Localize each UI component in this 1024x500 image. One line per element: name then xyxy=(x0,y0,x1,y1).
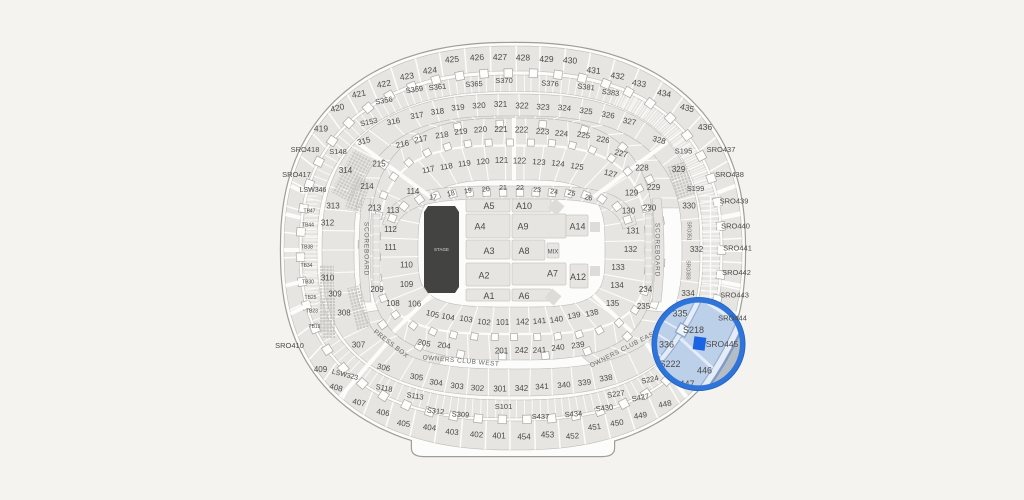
svg-text:S381: S381 xyxy=(577,82,595,93)
svg-text:336: 336 xyxy=(659,339,674,349)
svg-text:339: 339 xyxy=(577,377,592,388)
svg-text:220: 220 xyxy=(473,125,487,135)
svg-text:242: 242 xyxy=(515,346,529,355)
svg-text:222: 222 xyxy=(515,126,529,135)
svg-text:106: 106 xyxy=(408,300,422,309)
svg-text:301: 301 xyxy=(493,385,507,394)
svg-text:SCOREBOARD: SCOREBOARD xyxy=(362,222,369,276)
svg-text:303: 303 xyxy=(450,381,465,391)
svg-text:342: 342 xyxy=(515,384,529,393)
svg-text:123: 123 xyxy=(532,157,546,167)
svg-text:140: 140 xyxy=(549,314,564,325)
svg-text:122: 122 xyxy=(513,157,527,166)
svg-text:429: 429 xyxy=(539,54,553,64)
svg-text:S361: S361 xyxy=(428,82,446,93)
svg-text:TB38: TB38 xyxy=(301,244,313,250)
svg-text:S218: S218 xyxy=(683,325,704,335)
svg-text:20: 20 xyxy=(482,186,491,194)
svg-text:426: 426 xyxy=(470,52,485,63)
svg-text:STAGE: STAGE xyxy=(434,247,449,252)
svg-text:S365: S365 xyxy=(465,79,483,89)
svg-text:S370: S370 xyxy=(495,76,513,85)
svg-text:SRO442: SRO442 xyxy=(722,268,751,277)
svg-text:A12: A12 xyxy=(570,272,586,282)
svg-text:120: 120 xyxy=(476,156,491,166)
svg-text:401: 401 xyxy=(492,432,506,441)
svg-text:425: 425 xyxy=(445,54,460,65)
svg-text:135: 135 xyxy=(606,299,620,308)
svg-text:454: 454 xyxy=(517,433,531,442)
svg-text:A1: A1 xyxy=(483,291,494,301)
svg-text:209: 209 xyxy=(370,285,384,294)
svg-text:TB23: TB23 xyxy=(306,308,318,314)
svg-text:432: 432 xyxy=(610,70,626,82)
svg-text:446: 446 xyxy=(697,365,712,375)
svg-text:TB25: TB25 xyxy=(305,295,317,301)
svg-text:324: 324 xyxy=(557,103,572,113)
svg-text:SCOREBOARD: SCOREBOARD xyxy=(653,223,660,277)
svg-text:SRO383: SRO383 xyxy=(685,260,691,279)
svg-text:319: 319 xyxy=(451,102,466,112)
svg-text:19: 19 xyxy=(464,187,473,195)
svg-text:S437: S437 xyxy=(532,412,550,421)
svg-text:213: 213 xyxy=(368,204,382,213)
svg-text:453: 453 xyxy=(541,431,555,440)
svg-text:424: 424 xyxy=(422,65,437,76)
svg-text:24: 24 xyxy=(550,188,559,196)
svg-text:332: 332 xyxy=(690,245,704,254)
svg-text:A10: A10 xyxy=(516,201,532,211)
svg-text:131: 131 xyxy=(626,227,640,236)
svg-text:111: 111 xyxy=(384,243,397,252)
svg-text:S312: S312 xyxy=(426,406,444,417)
svg-text:S434: S434 xyxy=(564,409,582,419)
svg-text:SRO417: SRO417 xyxy=(282,170,311,179)
svg-text:314: 314 xyxy=(339,166,353,175)
svg-text:142: 142 xyxy=(516,318,530,327)
svg-text:SRO418: SRO418 xyxy=(291,145,320,154)
svg-text:451: 451 xyxy=(587,422,602,432)
svg-text:234: 234 xyxy=(639,285,653,294)
svg-text:TB19: TB19 xyxy=(309,324,321,330)
svg-text:452: 452 xyxy=(565,431,579,441)
svg-text:240: 240 xyxy=(551,342,566,352)
svg-text:22: 22 xyxy=(516,185,524,192)
svg-text:129: 129 xyxy=(625,189,639,198)
svg-text:SRO410: SRO410 xyxy=(275,341,304,350)
svg-text:320: 320 xyxy=(472,101,486,111)
svg-text:A7: A7 xyxy=(547,268,558,278)
svg-text:409: 409 xyxy=(314,365,328,374)
svg-text:132: 132 xyxy=(624,245,638,254)
svg-text:S199: S199 xyxy=(687,184,705,193)
svg-text:403: 403 xyxy=(445,427,460,437)
svg-text:431: 431 xyxy=(586,65,601,76)
svg-text:219: 219 xyxy=(454,126,469,136)
svg-text:430: 430 xyxy=(563,55,578,66)
svg-text:130: 130 xyxy=(622,207,636,216)
svg-text:329: 329 xyxy=(672,165,686,174)
svg-text:313: 313 xyxy=(326,202,340,211)
svg-text:108: 108 xyxy=(386,299,400,308)
svg-text:S309: S309 xyxy=(451,409,469,419)
svg-text:323: 323 xyxy=(536,102,550,112)
svg-text:304: 304 xyxy=(429,377,444,388)
svg-text:309: 309 xyxy=(328,290,342,299)
svg-text:307: 307 xyxy=(352,341,366,350)
svg-text:A6: A6 xyxy=(518,291,529,301)
svg-text:MIX: MIX xyxy=(548,250,559,256)
svg-text:241: 241 xyxy=(533,345,547,355)
svg-text:423: 423 xyxy=(399,70,415,82)
svg-text:101: 101 xyxy=(496,318,510,327)
svg-text:A3: A3 xyxy=(483,246,494,256)
svg-text:17: 17 xyxy=(429,194,437,201)
svg-text:322: 322 xyxy=(515,102,529,111)
svg-text:S376: S376 xyxy=(541,79,559,89)
svg-text:TB44: TB44 xyxy=(302,222,314,228)
svg-text:21: 21 xyxy=(499,185,507,192)
svg-text:A14: A14 xyxy=(569,221,585,231)
svg-text:A2: A2 xyxy=(478,270,489,280)
svg-text:310: 310 xyxy=(321,274,335,283)
svg-text:114: 114 xyxy=(407,187,420,196)
svg-text:239: 239 xyxy=(571,340,586,351)
svg-text:SRO437: SRO437 xyxy=(707,145,736,154)
svg-text:450: 450 xyxy=(610,418,625,429)
svg-text:SRO439: SRO439 xyxy=(720,196,749,205)
svg-text:A4: A4 xyxy=(474,221,485,231)
svg-text:224: 224 xyxy=(554,129,569,139)
svg-text:427: 427 xyxy=(493,52,507,62)
svg-text:428: 428 xyxy=(516,52,530,62)
svg-text:A5: A5 xyxy=(483,201,494,211)
svg-text:SRO441: SRO441 xyxy=(723,243,752,252)
svg-text:S195: S195 xyxy=(675,146,693,155)
svg-text:404: 404 xyxy=(422,422,437,432)
svg-text:SRO351: SRO351 xyxy=(686,221,692,240)
svg-text:121: 121 xyxy=(495,156,509,165)
svg-text:A8: A8 xyxy=(518,246,529,256)
svg-text:S101: S101 xyxy=(495,402,513,411)
svg-text:225: 225 xyxy=(576,130,591,141)
svg-text:TB47: TB47 xyxy=(304,208,316,214)
svg-text:334: 334 xyxy=(681,289,695,298)
svg-text:235: 235 xyxy=(637,302,651,311)
svg-text:124: 124 xyxy=(551,158,566,169)
svg-text:119: 119 xyxy=(458,158,472,169)
svg-text:321: 321 xyxy=(494,100,508,109)
svg-text:223: 223 xyxy=(536,127,550,137)
svg-text:214: 214 xyxy=(360,182,374,191)
svg-text:228: 228 xyxy=(635,164,649,173)
svg-text:SRO438: SRO438 xyxy=(715,170,744,179)
svg-text:340: 340 xyxy=(557,380,572,390)
svg-text:134: 134 xyxy=(610,281,624,290)
svg-text:436: 436 xyxy=(698,122,712,132)
svg-text:102: 102 xyxy=(477,317,492,327)
svg-text:201: 201 xyxy=(495,347,509,356)
svg-text:221: 221 xyxy=(494,125,508,134)
svg-text:23: 23 xyxy=(533,187,541,195)
svg-text:325: 325 xyxy=(579,106,594,117)
svg-text:215: 215 xyxy=(372,160,386,169)
svg-text:230: 230 xyxy=(643,204,657,213)
svg-text:312: 312 xyxy=(321,219,335,228)
svg-text:113: 113 xyxy=(387,206,400,215)
svg-text:330: 330 xyxy=(682,202,696,211)
svg-text:402: 402 xyxy=(470,430,484,440)
svg-text:141: 141 xyxy=(532,316,547,326)
svg-text:229: 229 xyxy=(647,183,661,192)
svg-text:318: 318 xyxy=(430,106,445,117)
svg-text:SRO445: SRO445 xyxy=(706,339,739,349)
svg-text:302: 302 xyxy=(471,383,485,393)
svg-text:112: 112 xyxy=(384,225,397,234)
svg-text:A9: A9 xyxy=(517,221,528,231)
svg-text:405: 405 xyxy=(396,418,411,429)
svg-text:SRO443: SRO443 xyxy=(720,290,749,299)
svg-text:TB30: TB30 xyxy=(302,279,314,285)
svg-text:133: 133 xyxy=(611,263,625,272)
svg-text:110: 110 xyxy=(400,261,413,270)
svg-text:SRO440: SRO440 xyxy=(721,221,750,230)
svg-text:109: 109 xyxy=(400,280,414,289)
svg-text:308: 308 xyxy=(337,309,351,318)
svg-text:LSW346: LSW346 xyxy=(300,187,327,194)
svg-text:341: 341 xyxy=(535,382,549,392)
svg-text:SRO444: SRO444 xyxy=(718,313,747,322)
svg-text:S148: S148 xyxy=(329,147,347,156)
svg-text:218: 218 xyxy=(435,130,450,141)
svg-text:TB34: TB34 xyxy=(301,263,313,269)
svg-text:419: 419 xyxy=(314,123,328,133)
